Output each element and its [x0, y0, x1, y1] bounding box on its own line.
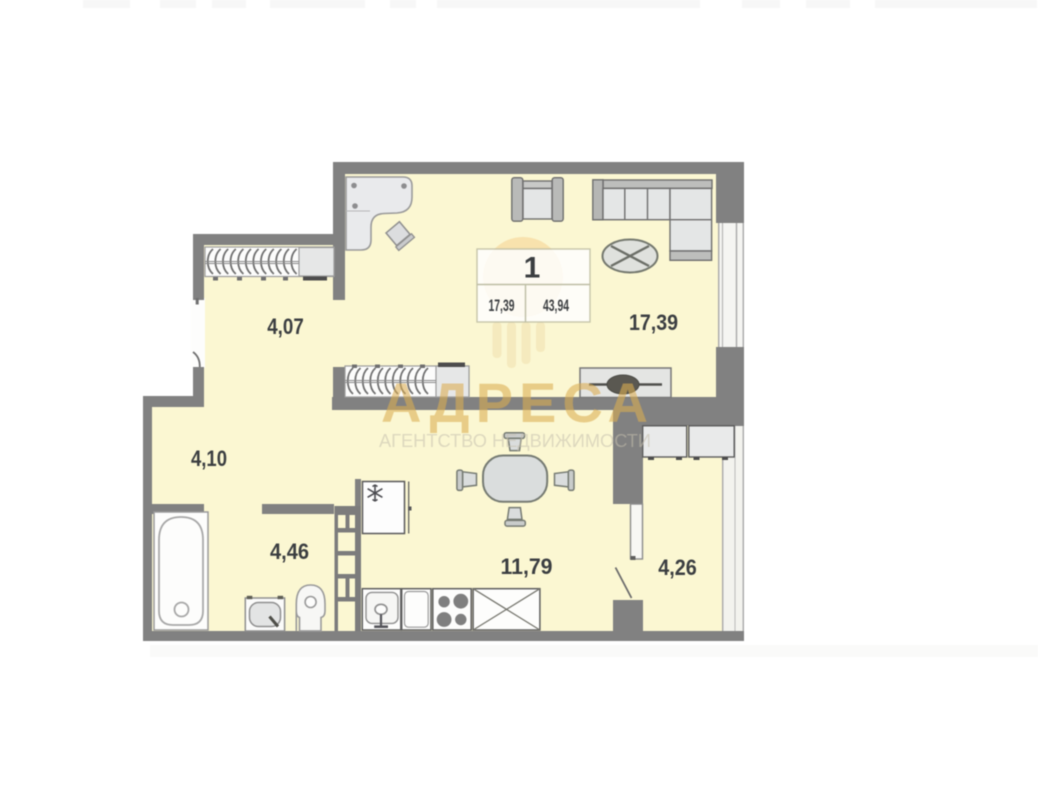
svg-text:4,10: 4,10	[191, 446, 227, 471]
svg-text:1: 1	[524, 252, 541, 285]
svg-text:4,26: 4,26	[658, 555, 697, 580]
svg-text:11,79: 11,79	[501, 554, 553, 579]
svg-text:4,46: 4,46	[270, 539, 309, 564]
svg-text:17,39: 17,39	[489, 297, 515, 315]
svg-text:АГЕНТСТВО НЕДВИЖИМОСТИ: АГЕНТСТВО НЕДВИЖИМОСТИ	[379, 431, 651, 451]
svg-text:43,94: 43,94	[543, 297, 570, 315]
svg-text:17,39: 17,39	[629, 310, 678, 335]
svg-text:4,07: 4,07	[267, 314, 304, 339]
